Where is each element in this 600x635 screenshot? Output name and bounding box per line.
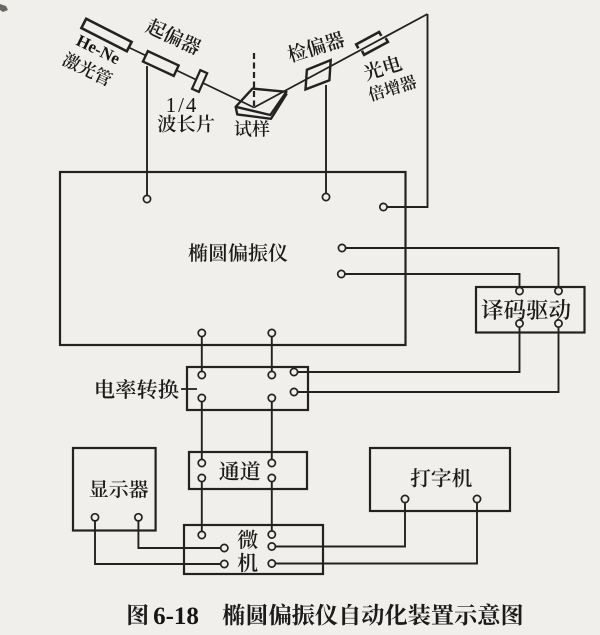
svg-text:1/4: 1/4: [166, 93, 199, 117]
svg-text:6-18: 6-18: [153, 603, 199, 630]
